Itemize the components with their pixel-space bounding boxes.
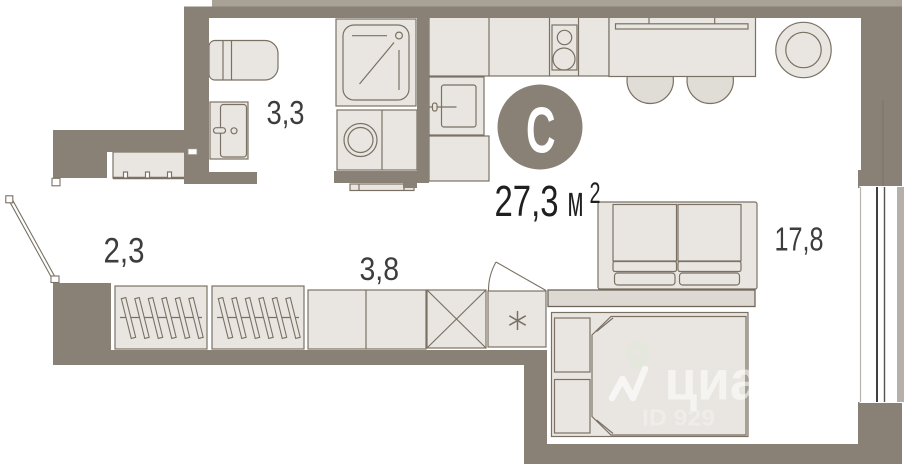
svg-text:17,8: 17,8 [775,222,824,259]
svg-text:м: м [568,178,584,226]
svg-text:3,8: 3,8 [360,251,400,287]
svg-text:3,3: 3,3 [267,94,305,131]
svg-text:ID 929: ID 929 [642,405,715,431]
svg-text:С: С [526,95,556,167]
svg-text:2: 2 [590,177,601,210]
svg-text:27,3: 27,3 [495,178,559,226]
svg-text:циан: циан [665,349,792,412]
svg-text:2,3: 2,3 [104,232,145,271]
